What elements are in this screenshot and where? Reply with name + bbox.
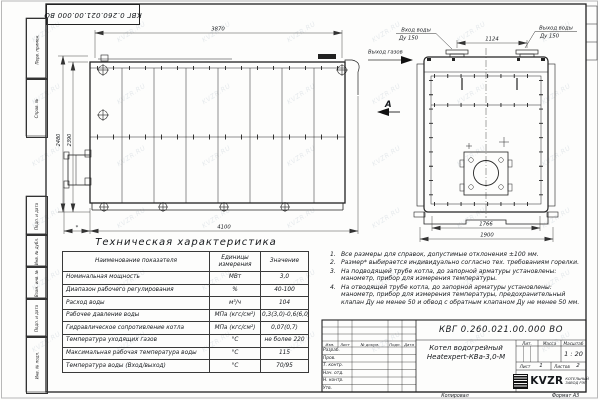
tech-table-cell: 104 [261,297,309,310]
doc-number: КВГ 0.260.021.00.000 ВО [416,320,586,340]
dim-1766: 1766 [479,222,493,228]
burner-mount [64,152,90,188]
margin-label: Справ. № [35,98,40,117]
tech-header-name: Наименование показателя [63,252,210,272]
tech-table-cell: Рабочее давление воды [63,309,210,322]
company-line2: ЗАВОД РЭП [565,381,588,385]
water-flanges [446,50,538,57]
tech-table: Наименование показателя Единицы измерени… [62,251,309,373]
tech-characteristics: Техническая характеристика Наименование … [62,237,310,373]
flue-outlet [345,60,359,95]
tech-table-row: Диапазон рабочего регулирования%40-100 [63,284,309,297]
row-label-approved: Утв. [323,385,353,393]
manufacturer-logo: KVZR КОТЕЛЬНЫЙ ЗАВОД РЭП [516,370,586,392]
product-name-line2: Heatexpert-КВа-3,0-М [416,352,516,361]
dim-3870: 3870 [211,27,225,33]
tech-table-cell: 40-100 [261,284,309,297]
label-water-outlet-dn: Ду 150 [539,34,560,40]
tech-table-cell: Расход воды [63,297,210,310]
side-body [90,62,345,203]
row-label-checked: Пров. [323,355,353,363]
right-margin-boxes [586,6,597,60]
note-text: Все размеры для справок, допустимые откл… [341,251,584,258]
tech-table-cell: 115 [261,347,309,360]
tech-table-cell: Температура воды (Вход/выход) [63,360,210,373]
tech-table-cell: °С [210,347,261,360]
tech-header-units: Единицы измерения [210,252,261,272]
margin-label: Взам. инв. № [35,269,40,296]
margin-label: Перв. примен. [35,34,40,64]
tech-table-row: Температура воды (Вход/выход)°С70/95 [63,360,309,373]
col-header-date: Дата [402,341,416,347]
tech-table-header-row: Наименование показателя Единицы измерени… [63,252,309,272]
sheets-label: Листов [551,362,573,370]
tech-table-cell: °С [210,360,261,373]
tech-table-cell: МПа (кгс/см²) [210,322,261,335]
boiler-side-view [64,54,359,212]
tech-table-cell: °С [210,334,261,347]
label-view-a: А [384,100,392,110]
tech-table-cell: м³/ч [210,297,261,310]
tech-table-cell: Температура уходящих газов [63,334,210,347]
label-water-outlet: Выход воды [539,26,573,32]
tech-table-cell: Номинальная мощность [63,272,210,285]
dim-2390: 2390 [67,134,73,147]
company-name: КОТЕЛЬНЫЙ ЗАВОД РЭП [565,377,588,385]
tech-table-row: Рабочее давление водыМПа (кгс/см²)0,3(3,… [63,309,309,322]
margin-label: Инв. № дубл. [35,237,40,264]
note-item: 4.На отводящей трубе котла, до запорной … [330,284,584,306]
sheet-value: 1 [534,362,548,370]
tech-header-value: Значение [261,252,309,272]
note-item: 3.На подводящей трубе котла, до запорной… [330,268,584,283]
row-label-tcontrol: Т. контр. [323,362,353,370]
dim-4100: 4100 [217,225,231,231]
margin-label: Подп. и дата [35,202,40,229]
tech-table-cell: 0,3(3,0)-0,6(6,0) [261,309,309,322]
tech-table-cell: Максимальная рабочая температура воды [63,347,210,360]
note-text: На отводящей трубе котла, до запорной ар… [341,284,584,306]
boiler-front-view [414,48,558,224]
row-label-dept-head: Нач. отд. [323,370,353,378]
logo-mark-icon [513,374,528,389]
tech-table-cell: 3,0 [261,272,309,285]
row-label-developed: Разраб. [323,347,353,355]
note-item: 1.Все размеры для справок, допустимые от… [330,251,584,258]
dim-1124: 1124 [485,37,498,43]
tech-table-row: Расход водым³/ч104 [63,297,309,310]
note-number: 3. [330,268,341,283]
dim-burner-star: * [76,225,79,231]
dim-2480: 2480 [56,134,62,147]
margin-box-ref-number: Справ. № [26,78,48,138]
margin-label: Подп. и дата [35,304,40,331]
product-name-line1: Котел водогрейный [416,343,516,352]
scale-value: 1 : 20 [561,346,586,362]
tech-table-title: Техническая характеристика [62,237,310,248]
label-water-inlet-dn: Ду 150 [398,36,419,42]
tech-table-cell: МВт [210,272,261,285]
tech-table-row: Температура уходящих газов°Сне более 220 [63,334,309,347]
logo-text: KVZR [530,375,563,387]
row-label-ncontrol: Н. контр. [323,377,353,385]
note-number: 2. [330,259,341,266]
notes-list: 1.Все размеры для справок, допустимые от… [330,251,584,307]
top-stamp: КВГ 0.260.021.00.000 ВО [46,4,140,25]
margin-box-primary-use: Перв. примен. [26,18,48,80]
tech-table-cell: 0,07(0,7) [261,322,309,335]
col-header-sign: Подп. [388,341,402,347]
tech-table-cell: 70/95 [261,360,309,373]
note-item: 2.Размер* выбирается индивидуально согла… [330,259,584,266]
margin-box-inv-dupl: Инв. № дубл. [26,234,48,268]
margin-box-sign-date-2: Подп. и дата [26,298,48,338]
note-number: 4. [330,284,341,306]
tech-table-cell: МПа (кгс/см²) [210,309,261,322]
mass-header: Масса [538,340,561,346]
tech-table-cell: % [210,284,261,297]
note-number: 1. [330,251,341,258]
margin-box-inv-orig: Инв. № подл. [26,336,48,394]
tech-table-cell: Диапазон рабочего регулирования [63,284,210,297]
tech-table-row: Номинальная мощностьМВт3,0 [63,272,309,285]
lit-header: Лит. [516,340,538,346]
label-gas-outlet: Выход газов [368,50,403,56]
drawing-sheet: KVZR.RUKVZR.RUKVZR.RUKVZR.RUKVZR.RUKVZR.… [0,0,600,400]
sheet-label: Лист [516,362,534,370]
col-header-docnum: № докум. [352,341,388,347]
dim-1900: 1900 [480,233,494,239]
note-text: Размер* выбирается индивидуально согласн… [341,259,584,266]
anchor-eyes [97,64,348,212]
top-stamp-text: КВГ 0.260.021.00.000 ВО [44,11,142,19]
tech-table-row: Гидравлическое сопротивление котлаМПа (к… [63,322,309,335]
margin-label: Инв. № подл. [35,351,40,379]
tech-table-row: Максимальная рабочая температура воды°С1… [63,347,309,360]
note-text: На подводящей трубе котла, до запорной а… [341,268,584,283]
tech-table-cell: не более 220 [261,334,309,347]
sheets-value: 2 [572,362,584,370]
format-label: Формат А3 [538,392,593,400]
tech-table-cell: Гидравлическое сопротивление котла [63,322,210,335]
margin-box-sign-date-1: Подп. и дата [26,196,48,236]
copied-label: Копировал [425,392,485,400]
label-water-inlet: Вход воды [401,28,431,34]
margin-box-repl-inv: Взам. инв. № [26,266,48,300]
